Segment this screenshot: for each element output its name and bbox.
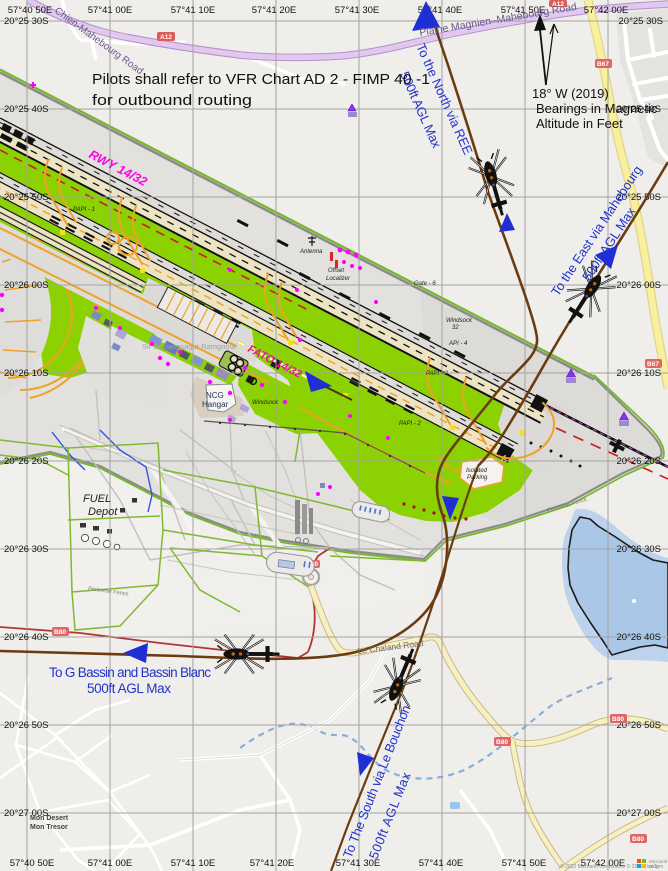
- svg-text:Mon Desert: Mon Desert: [30, 815, 69, 822]
- svg-text:Gate - 6: Gate - 6: [414, 281, 436, 287]
- svg-text:Bearings in Magnetic: Bearings in Magnetic: [536, 101, 658, 116]
- svg-text:Windsock: Windsock: [252, 400, 279, 406]
- svg-text:57°41 50E: 57°41 50E: [502, 858, 546, 869]
- svg-text:Isolated: Isolated: [466, 468, 488, 474]
- svg-text:20°26 50S: 20°26 50S: [4, 720, 48, 731]
- svg-text:FUEL: FUEL: [83, 493, 111, 505]
- svg-text:20°26 20S: 20°26 20S: [617, 456, 661, 467]
- svg-text:57°42 00E: 57°42 00E: [584, 5, 628, 16]
- svg-text:20°26 00S: 20°26 00S: [4, 280, 48, 291]
- svg-text:20°25 50S: 20°25 50S: [4, 192, 48, 203]
- svg-text:PAPI - 1: PAPI - 1: [73, 207, 95, 213]
- svg-text:57°41 30E: 57°41 30E: [335, 5, 379, 16]
- svg-text:18° W (2019): 18° W (2019): [532, 86, 609, 101]
- svg-text:57°40 50E: 57°40 50E: [10, 858, 54, 869]
- svg-text:57°41 00E: 57°41 00E: [88, 5, 132, 16]
- svg-text:B67: B67: [647, 361, 659, 368]
- svg-text:B80: B80: [54, 629, 66, 636]
- svg-text:57°41 00E: 57°41 00E: [88, 858, 132, 869]
- svg-text:20°26 00S: 20°26 00S: [617, 280, 661, 291]
- svg-text:57°41 40E: 57°41 40E: [419, 858, 463, 869]
- svg-text:32: 32: [452, 325, 459, 331]
- svg-text:20°26 10S: 20°26 10S: [617, 368, 661, 379]
- svg-text:57°41 10E: 57°41 10E: [171, 858, 215, 869]
- svg-text:Offset: Offset: [328, 268, 344, 274]
- svg-text:for outbound routing: for outbound routing: [92, 92, 252, 109]
- svg-text:Sir Seewoosagur Ramgoola: Sir Seewoosagur Ramgoola: [142, 342, 236, 351]
- svg-text:500ft AGL Max: 500ft AGL Max: [87, 681, 171, 696]
- svg-text:57°41 20E: 57°41 20E: [250, 858, 294, 869]
- svg-text:To G Bassin and Bassin Blanc: To G Bassin and Bassin Blanc: [49, 665, 211, 680]
- svg-text:20°26 30S: 20°26 30S: [4, 544, 48, 555]
- svg-text:20°26 40S: 20°26 40S: [617, 632, 661, 643]
- svg-text:Bing: Bing: [649, 864, 659, 869]
- svg-text:57°40 50E: 57°40 50E: [8, 5, 52, 16]
- svg-text:20°26 30S: 20°26 30S: [617, 544, 661, 555]
- svg-text:B67: B67: [597, 61, 609, 68]
- svg-text:B80: B80: [496, 739, 508, 746]
- svg-text:B80: B80: [632, 836, 644, 843]
- svg-text:API - 4: API - 4: [448, 341, 468, 347]
- svg-text:20°27 00S: 20°27 00S: [617, 808, 661, 819]
- svg-text:NCG: NCG: [206, 391, 224, 400]
- svg-text:20°25 30S: 20°25 30S: [619, 16, 663, 27]
- svg-text:Depot: Depot: [88, 506, 118, 518]
- svg-text:Altitude in Feet: Altitude in Feet: [536, 116, 623, 131]
- svg-text:Localizer: Localizer: [326, 276, 351, 282]
- svg-text:Pilots shall refer to VFR Char: Pilots shall refer to VFR Chart AD 2 - F…: [92, 71, 430, 88]
- svg-text:20°26 20S: 20°26 20S: [4, 456, 48, 467]
- svg-text:20°25 30S: 20°25 30S: [4, 16, 48, 27]
- svg-text:Parking: Parking: [467, 475, 488, 481]
- svg-text:PAPI - 2: PAPI - 2: [426, 371, 449, 377]
- svg-text:Windsock: Windsock: [446, 318, 473, 324]
- svg-text:B80: B80: [612, 716, 624, 723]
- svg-text:PAPI - 2: PAPI - 2: [399, 421, 422, 427]
- svg-text:20°26 40S: 20°26 40S: [4, 632, 48, 643]
- svg-text:Hangar: Hangar: [202, 400, 229, 409]
- svg-text:20°26 10S: 20°26 10S: [4, 368, 48, 379]
- svg-text:Antenna: Antenna: [299, 249, 323, 255]
- svg-text:© 2022 Microsoft Corporation ©: © 2022 Microsoft Corporation © 2022 TomT…: [560, 863, 663, 870]
- svg-text:57°41 20E: 57°41 20E: [252, 5, 296, 16]
- svg-text:A12: A12: [160, 34, 172, 41]
- svg-text:20°25 40S: 20°25 40S: [4, 104, 48, 115]
- svg-text:57°41 10E: 57°41 10E: [171, 5, 215, 16]
- svg-text:Mon Tresor: Mon Tresor: [30, 824, 68, 831]
